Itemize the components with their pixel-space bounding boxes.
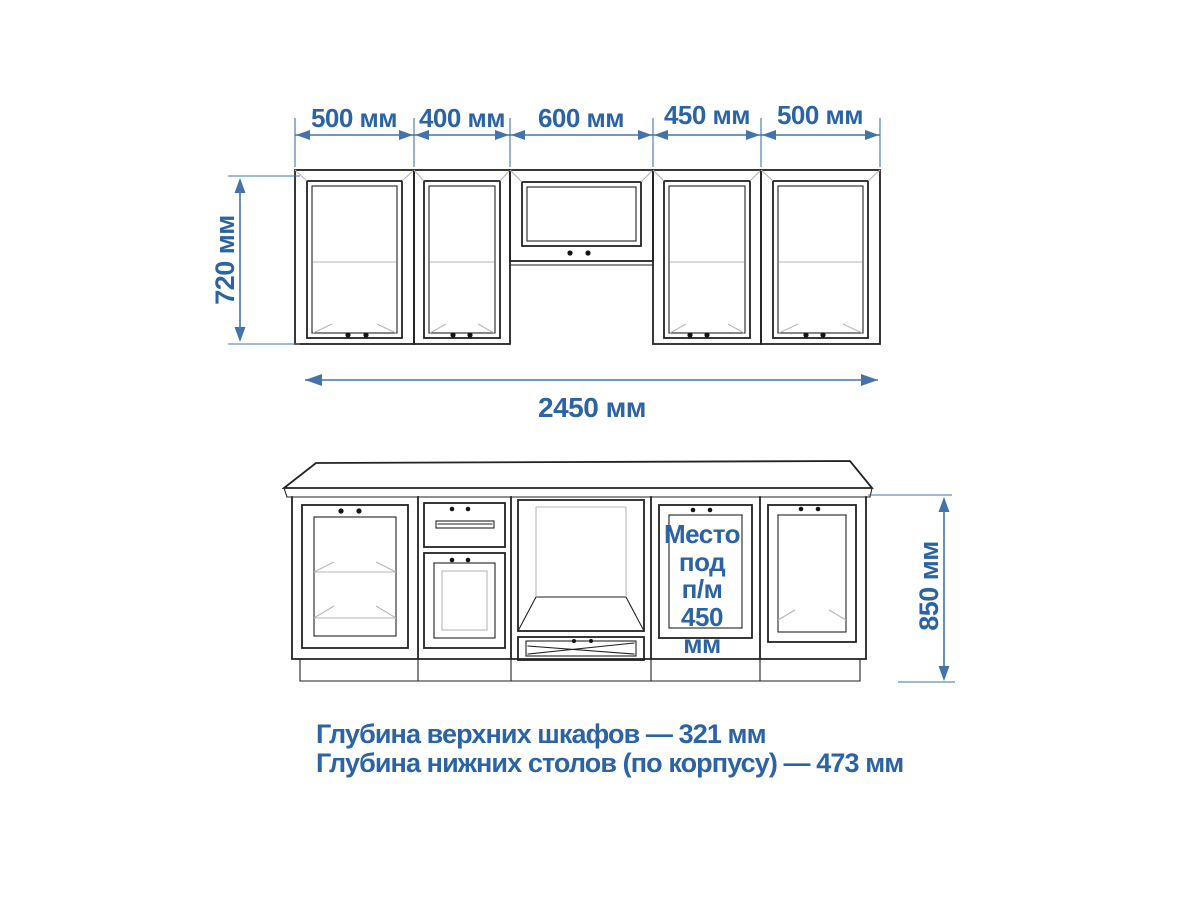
upper-dimension-label: 500 мм [311, 103, 397, 133]
upper-width-dimensions: 500 мм 400 мм 600 мм 450 мм 500 мм [295, 100, 880, 167]
upper-cabinet-hood [510, 170, 653, 265]
upper-height-label: 720 мм [210, 215, 240, 305]
upper-cabinet-5 [761, 170, 880, 344]
cabinet-door [424, 181, 500, 338]
bottom-drawer [518, 637, 644, 660]
depth-notes: Глубина верхних шкафов — 321 мм Глубина … [316, 719, 903, 778]
kitchen-cabinet-dimension-drawing: 500 мм 400 мм 600 мм 450 мм 500 мм [0, 0, 1200, 900]
upper-cabinet-4 [653, 170, 761, 344]
door-handle-dots [345, 332, 350, 337]
kitchen-drawing-page: 500 мм 400 мм 600 мм 450 мм 500 мм [0, 0, 1200, 900]
depth-note-lower: Глубина нижних столов (по корпусу) — 473… [316, 748, 903, 778]
plinth [300, 659, 860, 681]
base-cabinet-right [768, 505, 856, 642]
drawer-handle-dots [572, 639, 576, 643]
door-handle-dots [450, 558, 455, 563]
upper-dimension-label: 450 мм [664, 100, 750, 130]
lower-height-dimension: 850 мм [868, 495, 955, 682]
glass-door [302, 505, 408, 648]
total-width-label: 2450 мм [538, 392, 646, 423]
door-handle-dots [687, 332, 692, 337]
door-handle-dots [338, 508, 343, 513]
door-handle-dots [450, 332, 455, 337]
hood-flip-door [522, 182, 641, 246]
cabinet-door [664, 181, 750, 338]
upper-dimension-label: 400 мм [419, 103, 505, 133]
cabinet-door [773, 181, 868, 338]
upper-cabinets-row [295, 170, 880, 344]
base-cabinet-1 [302, 505, 408, 648]
door-handle-dots [803, 332, 808, 337]
upper-dimension-label: 600 мм [538, 103, 624, 133]
depth-note-upper: Глубина верхних шкафов — 321 мм [316, 719, 766, 749]
upper-dimension-label: 500 мм [777, 100, 863, 130]
dishwasher-label-line: п/м [682, 574, 723, 604]
door-handle-dots [691, 508, 696, 513]
total-width-dimension: 2450 мм [305, 374, 878, 423]
cabinet-door [307, 181, 402, 338]
dishwasher-label-line: под [679, 547, 726, 577]
oven-niche [518, 500, 644, 631]
dishwasher-label-line: 450 [681, 602, 723, 632]
upper-height-dimension: 720 мм [210, 176, 300, 344]
cabinet-door [424, 553, 505, 648]
dishwasher-label-line: Место [664, 519, 740, 549]
door-handle-dots [799, 507, 804, 512]
upper-cabinet-1 [295, 170, 414, 344]
lower-cabinets-row [284, 461, 872, 681]
cabinet-door [768, 505, 856, 642]
lower-height-label: 850 мм [914, 541, 944, 631]
base-drawer-unit [424, 503, 505, 648]
door-handle-dots [567, 250, 572, 255]
upper-cabinet-2 [414, 170, 510, 344]
countertop [284, 461, 872, 497]
dishwasher-label-line: мм [683, 629, 720, 659]
